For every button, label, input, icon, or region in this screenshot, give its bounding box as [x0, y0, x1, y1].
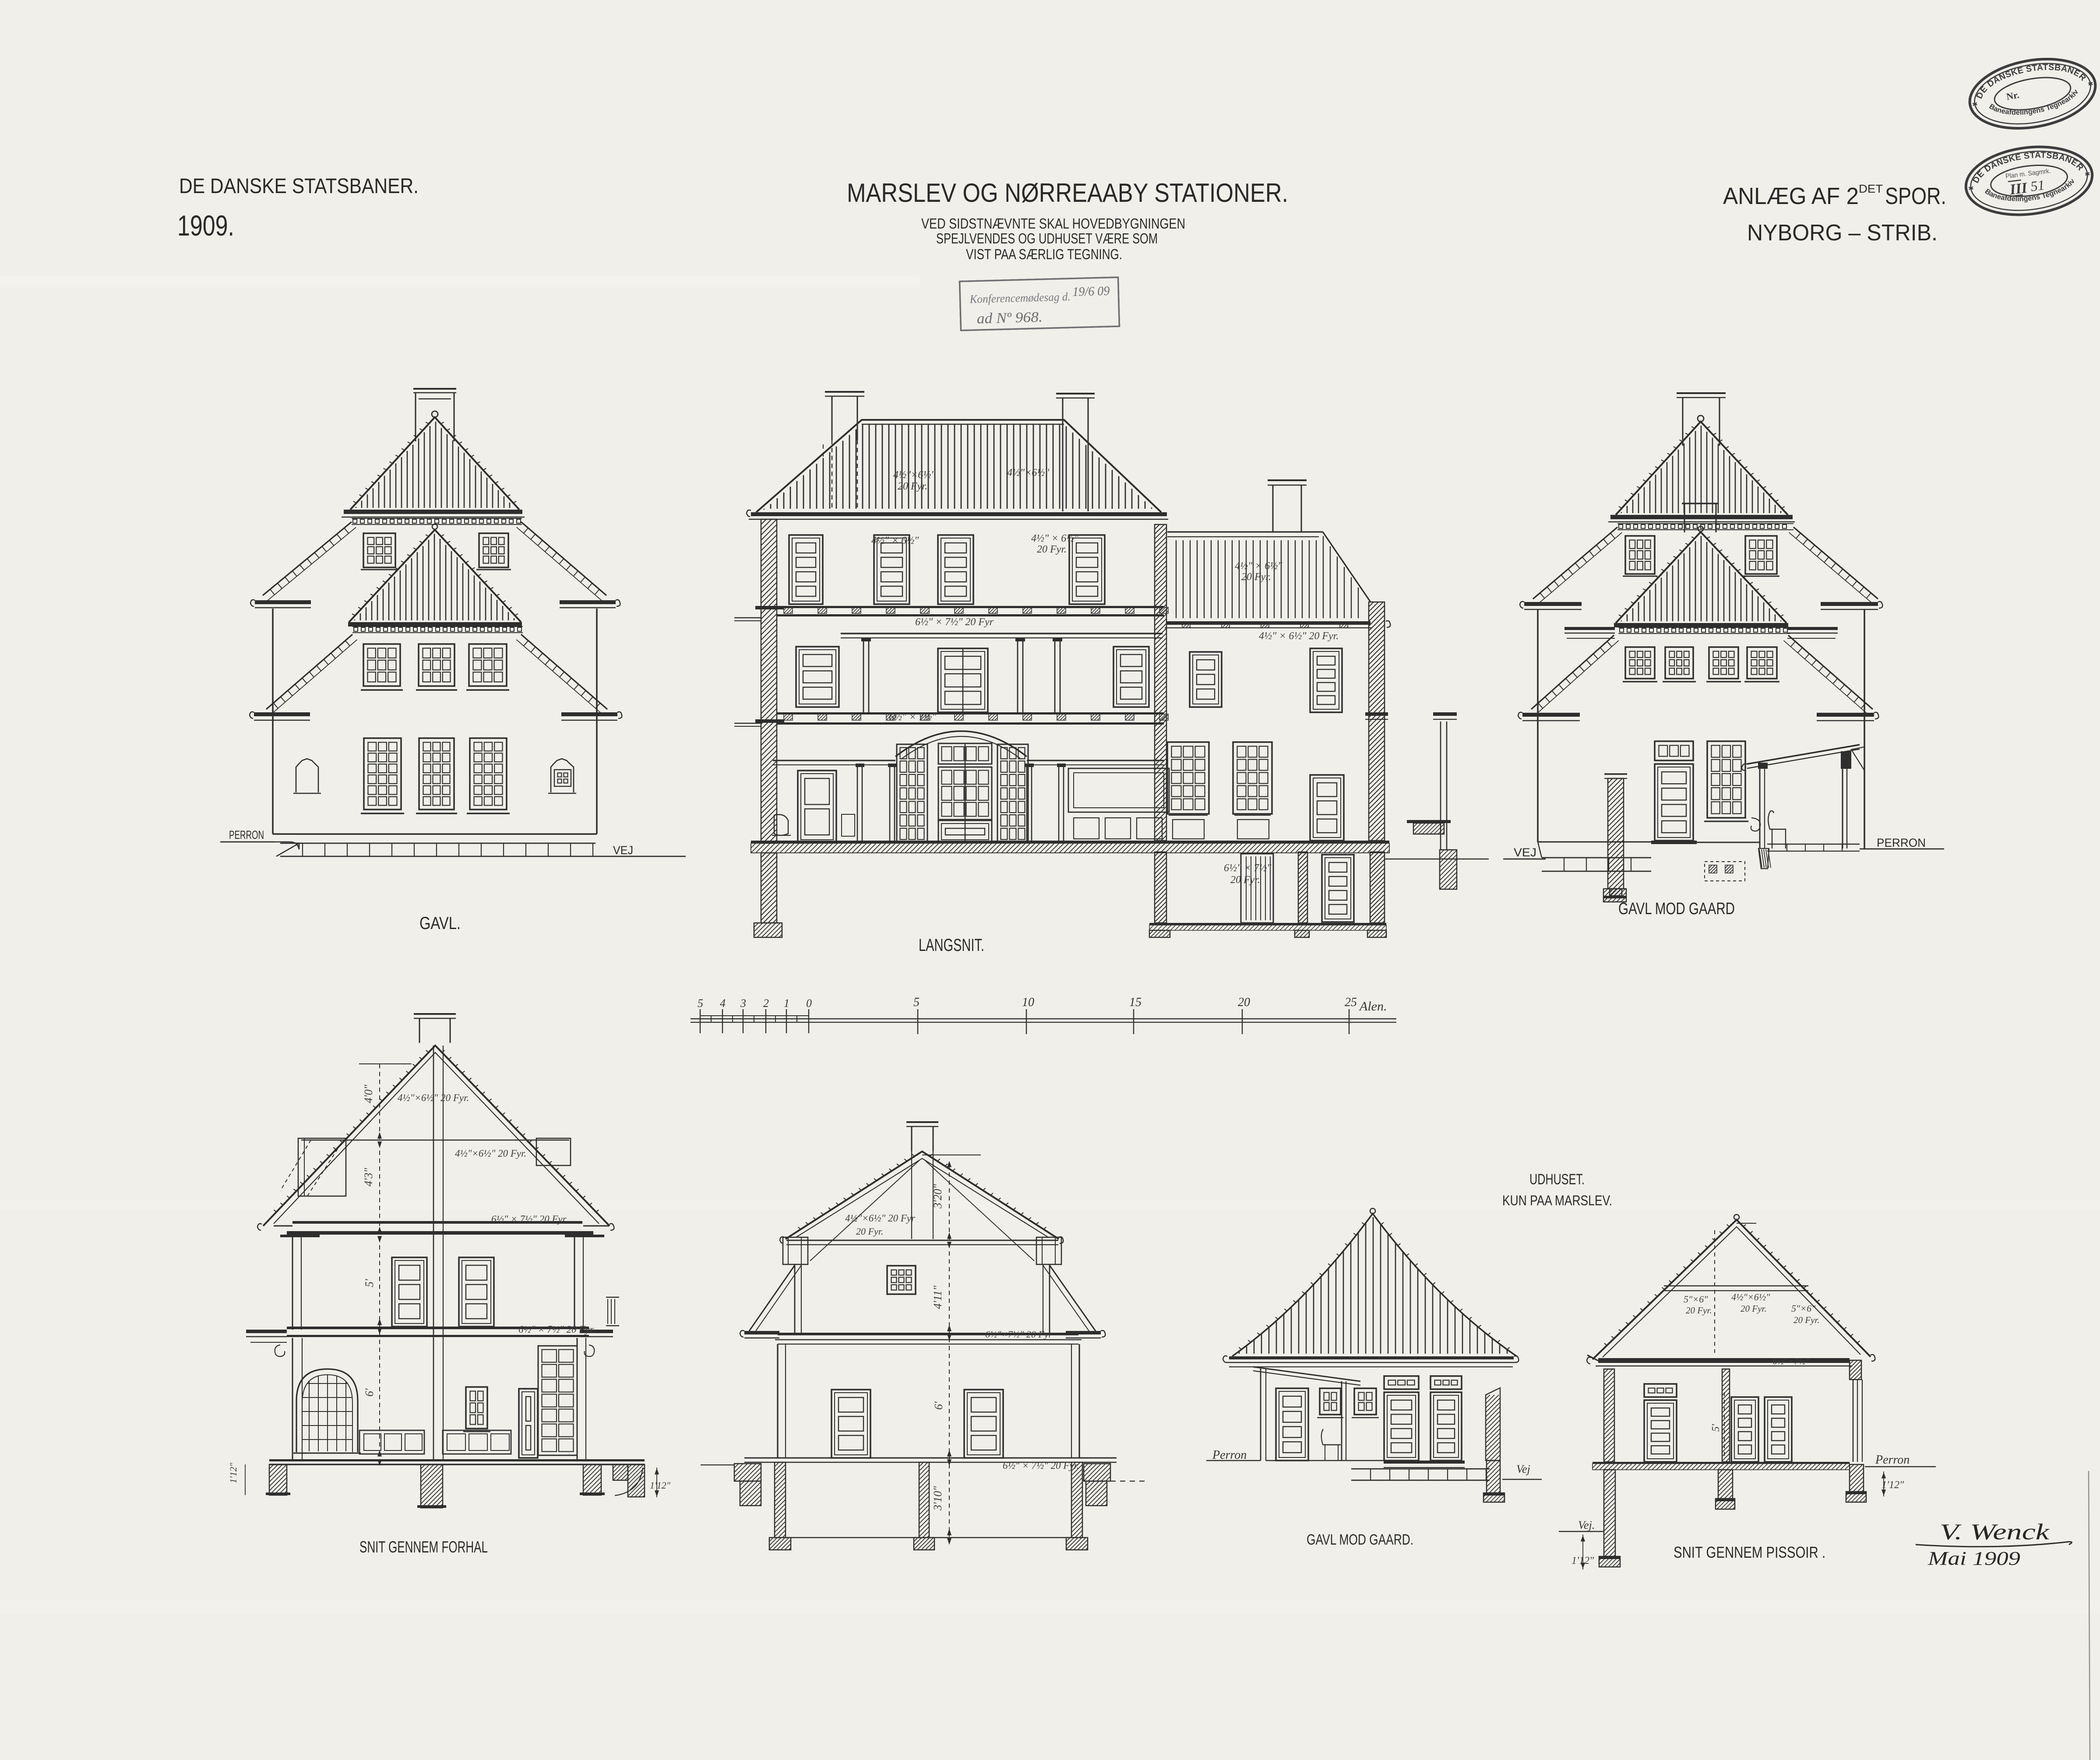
svg-text:UDHUSET.: UDHUSET.: [1529, 1171, 1585, 1188]
svg-text:✱: ✱: [2084, 170, 2091, 178]
svg-text:5: 5: [698, 997, 703, 1010]
svg-text:20 Fyr.: 20 Fyr.: [1793, 1315, 1820, 1325]
svg-text:6½" × 7½": 6½" × 7½": [889, 711, 937, 723]
svg-text:SPOR.: SPOR.: [1885, 183, 1946, 209]
svg-text:PERRON: PERRON: [229, 828, 264, 841]
svg-text:3'10": 3'10": [931, 1486, 944, 1511]
svg-text:5': 5': [363, 1279, 376, 1287]
svg-text:4½" × 6½" 20 Fyr.: 4½" × 6½" 20 Fyr.: [1259, 630, 1339, 642]
svg-text:Konferencemødesag d.: Konferencemødesag d.: [969, 290, 1071, 306]
svg-text:4'3": 4'3": [362, 1168, 375, 1186]
svg-text:20 Fyr.: 20 Fyr.: [1241, 571, 1271, 583]
svg-text:19/6 09: 19/6 09: [1072, 284, 1110, 299]
svg-text:4½"×6½": 4½"×6½": [893, 469, 936, 481]
svg-text:Perron: Perron: [1875, 1453, 1910, 1467]
svg-text:4½"×6½": 4½"×6½": [1007, 467, 1050, 479]
svg-text:25: 25: [1345, 996, 1357, 1009]
svg-text:6½" × 7½" 20 Fyr: 6½" × 7½" 20 Fyr: [491, 1214, 567, 1225]
svg-text:GAVL MOD GAARD.: GAVL MOD GAARD.: [1307, 1531, 1413, 1548]
svg-text:4'11": 4'11": [931, 1285, 944, 1309]
svg-text:20 Fyr.: 20 Fyr.: [856, 1226, 883, 1237]
svg-text:6½" × 7½": 6½" × 7½": [1224, 862, 1272, 874]
svg-text:Alen.: Alen.: [1359, 999, 1387, 1014]
svg-text:SNIT GENNEM PISSOIR .: SNIT GENNEM PISSOIR .: [1674, 1543, 1825, 1561]
svg-text:4½" × 6½": 4½" × 6½": [1235, 560, 1283, 572]
svg-text:4½" × 6½": 4½" × 6½": [871, 535, 919, 546]
svg-text:6½"×7½": 6½"×7½": [1772, 1356, 1809, 1366]
svg-text:VED SIDSTNÆVNTE SKAL HOVEDB: VED SIDSTNÆVNTE SKAL HOVEDBYGNINGEN: [921, 215, 1185, 232]
svg-text:20 Fyr.: 20 Fyr.: [1230, 874, 1260, 886]
svg-text:6': 6': [932, 1401, 945, 1410]
svg-text:6½" × 7½" 20 Fyr.: 6½" × 7½" 20 Fyr.: [518, 1324, 595, 1335]
svg-text:Vej.: Vej.: [1578, 1519, 1595, 1531]
svg-text:20 Fyr.: 20 Fyr.: [898, 481, 927, 492]
svg-text:1909.: 1909.: [177, 209, 234, 242]
svg-text:MARSLEV OG NØRREAABY STATIO: MARSLEV OG NØRREAABY STATIONER.: [847, 178, 1288, 208]
svg-text:Vej: Vej: [1516, 1463, 1530, 1475]
svg-text:6': 6': [363, 1388, 376, 1397]
svg-text:0: 0: [806, 997, 812, 1010]
svg-text:PERRON: PERRON: [1877, 836, 1926, 849]
svg-text:20 Fyr.: 20 Fyr.: [1741, 1303, 1767, 1314]
svg-text:5: 5: [913, 996, 920, 1009]
svg-text:20 Fyr.: 20 Fyr.: [1037, 544, 1067, 555]
svg-text:3'20": 3'20": [931, 1184, 944, 1209]
svg-text:✱: ✱: [1968, 185, 1974, 193]
svg-text:VEJ: VEJ: [613, 844, 633, 857]
svg-text:SPEJLVENDES OG UDHUSET VÆRE: SPEJLVENDES OG UDHUSET VÆRE SOM: [936, 230, 1158, 246]
svg-text:5"×6": 5"×6": [1791, 1303, 1816, 1314]
svg-text:4½"×6½" 20 Fyr.: 4½"×6½" 20 Fyr.: [455, 1148, 526, 1159]
svg-text:ANLÆG AF 2: ANLÆG AF 2: [1723, 183, 1859, 209]
svg-text:ad Nº 968.: ad Nº 968.: [976, 309, 1043, 327]
svg-text:Nr.: Nr.: [2005, 89, 2020, 102]
svg-text:Perron: Perron: [1212, 1448, 1247, 1462]
svg-text:Mai 1909: Mai 1909: [1927, 1548, 2020, 1569]
svg-text:6½" × 7½" 20 Fyr.: 6½" × 7½" 20 Fyr.: [1003, 1460, 1079, 1471]
svg-text:4½"×6½": 4½"×6½": [1731, 1292, 1770, 1302]
svg-text:20 Fyr.: 20 Fyr.: [1686, 1305, 1712, 1316]
svg-text:10: 10: [1022, 996, 1034, 1009]
svg-text:4½"×6½" 20 Fyr.: 4½"×6½" 20 Fyr.: [398, 1092, 469, 1103]
svg-text:4'0": 4'0": [362, 1084, 375, 1103]
svg-text:VEJ: VEJ: [1514, 846, 1536, 859]
svg-text:5"×6": 5"×6": [1684, 1294, 1708, 1305]
svg-text:LANGSNIT.: LANGSNIT.: [919, 936, 984, 955]
svg-text:V. Wenck: V. Wenck: [1940, 1520, 2050, 1545]
svg-text:1'12": 1'12": [1882, 1479, 1904, 1491]
svg-text:51: 51: [2030, 177, 2045, 194]
svg-text:DET: DET: [1859, 182, 1883, 195]
svg-text:1'12": 1'12": [650, 1480, 671, 1491]
svg-text:GAVL.: GAVL.: [419, 914, 461, 933]
svg-text:VIST PAA SÆRLIG TEGNING.: VIST PAA SÆRLIG TEGNING.: [966, 246, 1122, 262]
svg-text:1: 1: [784, 997, 789, 1010]
svg-text:NYBORG – STRIB.: NYBORG – STRIB.: [1747, 220, 1938, 246]
svg-text:6½"×7½" 20 Fyr: 6½"×7½" 20 Fyr: [985, 1329, 1053, 1340]
svg-text:SNIT GENNEM FORHAL: SNIT GENNEM FORHAL: [359, 1538, 488, 1556]
svg-text:DE DANSKE STATSBANER.: DE DANSKE STATSBANER.: [179, 175, 419, 198]
svg-text:6½" × 7½" 20 Fyr: 6½" × 7½" 20 Fyr: [915, 616, 994, 628]
svg-text:2: 2: [763, 997, 769, 1010]
svg-text:KUN PAA MARSLEV.: KUN PAA MARSLEV.: [1502, 1193, 1612, 1208]
svg-text:20: 20: [1238, 996, 1250, 1009]
svg-text:GAVL MOD GAARD: GAVL MOD GAARD: [1618, 900, 1735, 918]
svg-text:4: 4: [720, 997, 726, 1010]
svg-text:15: 15: [1129, 996, 1142, 1009]
svg-text:1'12": 1'12": [228, 1462, 239, 1483]
svg-text:3: 3: [740, 997, 746, 1010]
svg-text:4½" × 6½": 4½" × 6½": [1031, 533, 1079, 544]
svg-text:4½"×6½" 20 Fyr: 4½"×6½" 20 Fyr: [845, 1213, 916, 1224]
svg-text:5': 5': [1710, 1424, 1722, 1432]
